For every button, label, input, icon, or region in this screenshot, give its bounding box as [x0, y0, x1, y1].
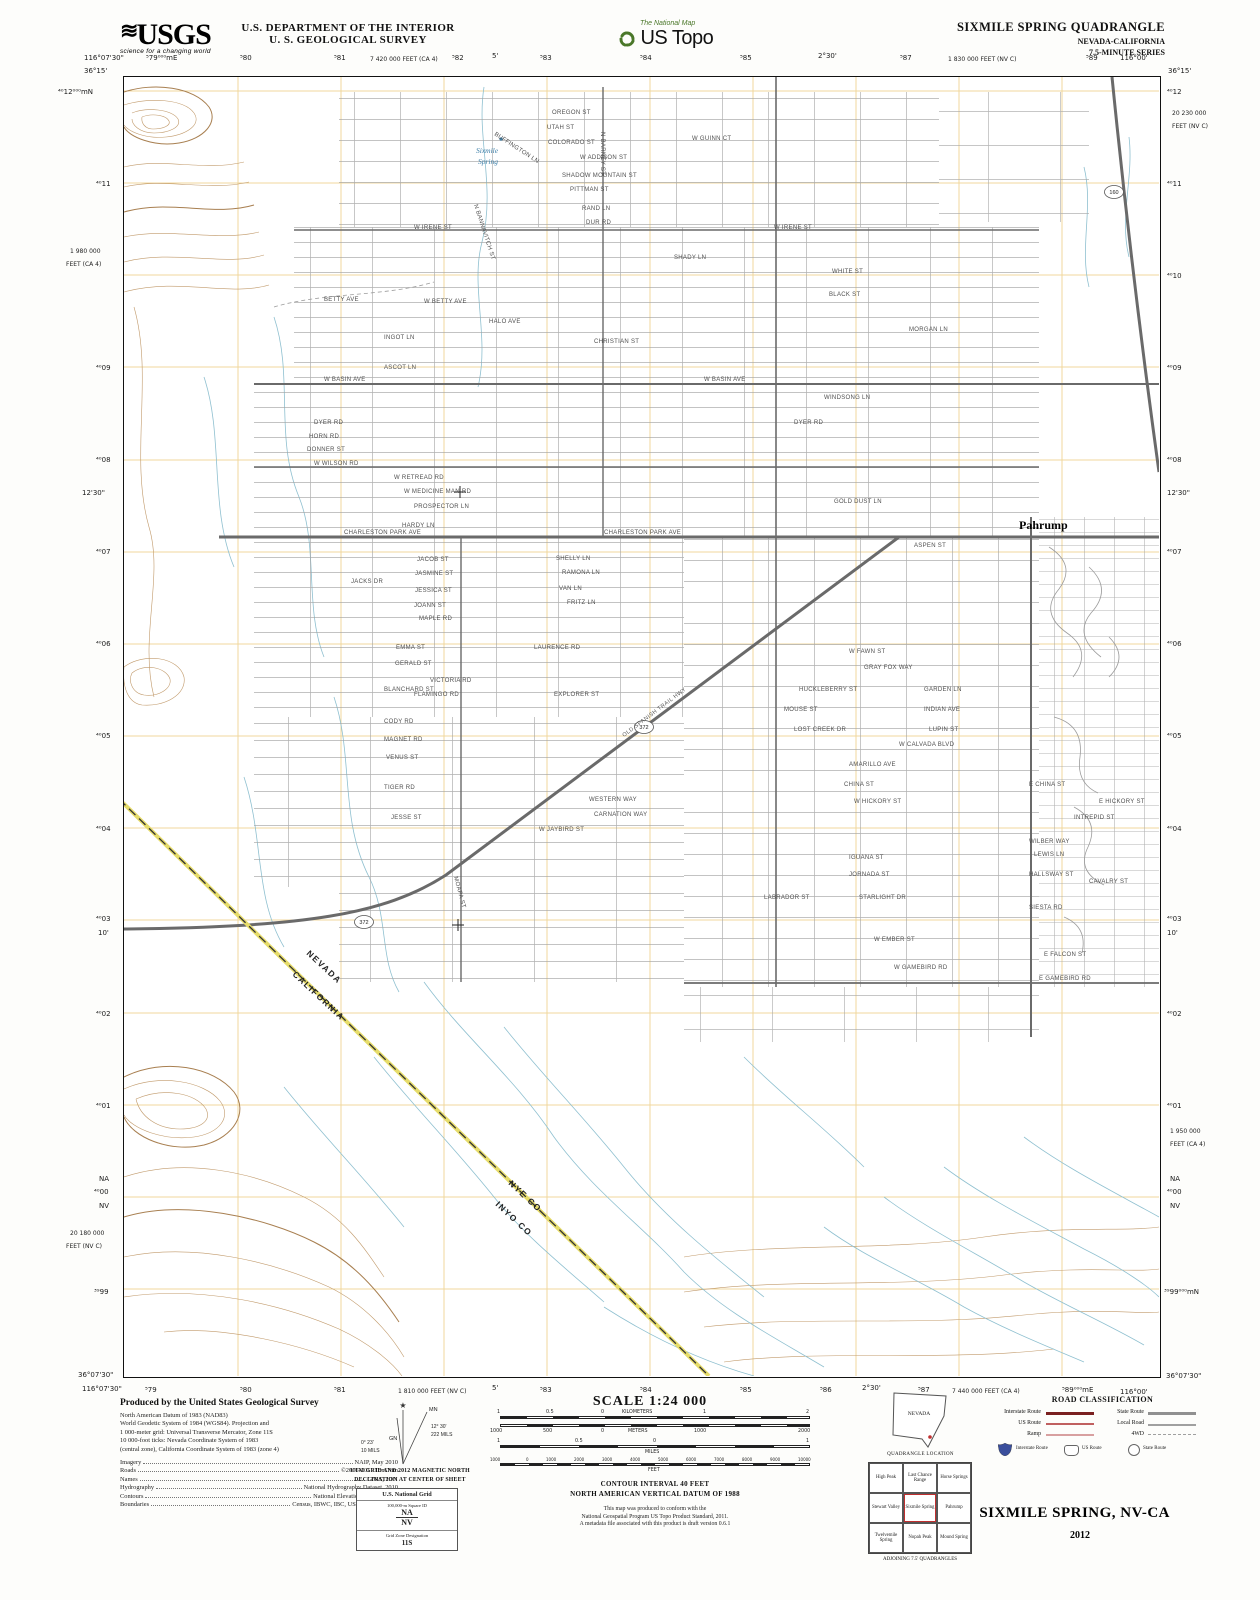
margin-label: ⁵80: [240, 54, 252, 62]
street-label: SHADY LN: [674, 255, 706, 261]
contour-interval: CONTOUR INTERVAL 40 FEET: [535, 1480, 775, 1488]
street-label: JESSICA ST: [415, 588, 452, 594]
street-label: W WILSON RD: [314, 461, 359, 467]
usng-gzd-label: Grid Zone Designation: [357, 1530, 457, 1538]
usgs-wave-icon: ≋: [120, 18, 136, 43]
conformance-line: A metadata file associated with this pro…: [495, 1521, 815, 1529]
margin-label: NV: [99, 1202, 109, 1210]
margin-label: ⁵85: [740, 1386, 752, 1394]
scale-tick: 1000: [546, 1457, 556, 1462]
gn-mils: 10 MILS: [361, 1448, 380, 1454]
street-label: INDIAN AVE: [924, 707, 960, 713]
usng-square-1: NA: [357, 1508, 457, 1517]
road-class-label: Interstate Route: [975, 1409, 1041, 1415]
usng-square-2: NV: [357, 1518, 457, 1527]
margin-label: 1 830 000 FEET (NV C): [948, 56, 1016, 63]
credit-label: Contours: [120, 1493, 143, 1500]
spring-label: Spring: [478, 157, 498, 166]
street-label: ASCOT LN: [384, 365, 416, 371]
adjoining-quad: Stewart Valley: [869, 1493, 903, 1523]
margin-label: ⁴⁰09: [96, 364, 111, 372]
department-heading: U.S. DEPARTMENT OF THE INTERIOR U. S. GE…: [218, 22, 478, 46]
street-label: CHARLESTON PARK AVE: [604, 530, 681, 536]
street-label: INTREPID ST: [1074, 815, 1115, 821]
street-label: OREGON ST: [552, 110, 591, 116]
scale-bar-km: [500, 1416, 810, 1419]
margin-label: ⁴⁰07: [96, 548, 111, 556]
margin-label: ⁴⁰05: [1167, 732, 1182, 740]
street-label: GERALD ST: [395, 661, 432, 667]
margin-label: ⁵84: [640, 54, 652, 62]
street-label: W GAMEBIRD RD: [894, 965, 948, 971]
margin-label: ⁴⁰06: [96, 640, 111, 648]
adjoining-quad: Last Chance Range: [903, 1463, 937, 1493]
route-shield-label: 372: [359, 920, 368, 926]
road-class-line-ramp: [1046, 1434, 1094, 1436]
margin-label: ⁵79: [145, 1386, 157, 1394]
conformance-line: This map was produced to conform with th…: [495, 1506, 815, 1514]
margin-label: ⁵83: [540, 54, 552, 62]
county-label-nye: NYE CO: [507, 1178, 544, 1214]
usng-title: U.S. National Grid: [357, 1489, 457, 1501]
street-label: MOUSE ST: [784, 707, 818, 713]
margin-label: 10': [1167, 929, 1178, 937]
dept-line2: U. S. GEOLOGICAL SURVEY: [218, 34, 478, 46]
scale-tick: 1000: [490, 1457, 500, 1462]
margin-label: NA: [99, 1175, 109, 1183]
margin-label: ⁴⁰04: [96, 825, 111, 833]
margin-label: 20 230 000: [1172, 110, 1206, 117]
road-class-line-interstate: [1046, 1412, 1094, 1415]
street-label: HALLSWAY ST: [1029, 872, 1074, 878]
scale-tick: 1: [497, 1410, 500, 1415]
street-label: W BASIN AVE: [324, 377, 366, 383]
street-label: VICTORIA RD: [430, 678, 472, 684]
street-label: BETTY AVE: [324, 297, 359, 303]
street-label: CHINA ST: [844, 782, 874, 788]
margin-label: 1 950 000: [1170, 1128, 1201, 1135]
street-label: PROSPECTOR LN: [414, 504, 469, 510]
ustopo-label: US Topo: [640, 27, 713, 49]
street-label: MORGAN LN: [909, 327, 948, 333]
margin-label: ⁴⁰12: [1167, 88, 1182, 96]
quad-title: SIXMILE SPRING QUADRANGLE: [845, 20, 1165, 35]
margin-label: 2°30': [818, 52, 837, 60]
margin-label: ⁴⁰09: [1167, 364, 1182, 372]
scale-tick: 9000: [770, 1457, 780, 1462]
gn-degrees: 0° 23': [361, 1440, 374, 1446]
street-label: E GAMEBIRD RD: [1039, 976, 1091, 982]
margin-label: ⁵81: [334, 1386, 346, 1394]
street-label: LABRADOR ST: [764, 895, 810, 901]
scale-tick: 5000: [658, 1457, 668, 1462]
map-canvas: 160 372 372 Pahrump Sixmile Spring NEVAD…: [124, 77, 1159, 1376]
scale-bar-miles: [500, 1445, 810, 1448]
margin-label: 36°15': [84, 67, 107, 75]
scale-tick: 4000: [630, 1457, 640, 1462]
margin-label: ⁴⁰01: [96, 1102, 111, 1110]
margin-label: 10': [98, 929, 109, 937]
ustopo-swirl-icon: [618, 30, 636, 48]
scale-tick: 7000: [714, 1457, 724, 1462]
credit-label: Imagery: [120, 1459, 141, 1466]
street-label: W FAWN ST: [849, 649, 886, 655]
road-class-label: State Route: [1096, 1409, 1144, 1415]
street-label: CAVALRY ST: [1089, 879, 1128, 885]
state-locator-map: NEVADA: [888, 1390, 952, 1450]
usng-box: U.S. National Grid 100,000-m Square ID N…: [356, 1488, 458, 1551]
declination-diagram: ★ MN GN 12° 30' 222 MILS 0° 23' 10 MILS: [345, 1398, 475, 1466]
street-label: EMMA ST: [396, 645, 425, 651]
scale-tick: 6000: [686, 1457, 696, 1462]
street-label: AMARILLO AVE: [849, 762, 896, 768]
street-label: HUCKLEBERRY ST: [799, 687, 857, 693]
street-label: W EMBER ST: [874, 937, 915, 943]
margin-label: ⁵85: [740, 54, 752, 62]
declination-caption: UTM GRID AND 2012 MAGNETIC NORTH: [325, 1468, 495, 1474]
margin-label: ⁴⁰07: [1167, 548, 1182, 556]
margin-label: 5': [492, 52, 498, 60]
road-class-line-local: [1148, 1424, 1196, 1426]
usgs-tagline: science for a changing world: [120, 48, 260, 55]
margin-label: 36°07'30": [1166, 1372, 1201, 1380]
adjoining-quad: Nopah Peak: [903, 1523, 937, 1553]
street-label: W CALVADA BLVD: [899, 742, 955, 748]
street-label: BLACK ST: [829, 292, 860, 298]
scale-tick: 1: [497, 1439, 500, 1444]
sheet-year: 2012: [1030, 1530, 1130, 1541]
street-label: E CHINA ST: [1029, 782, 1065, 788]
conformance-note: This map was produced to conform with th…: [495, 1506, 815, 1529]
street-label: HORN RD: [309, 434, 339, 440]
street-label: WESTERN WAY: [589, 797, 637, 803]
street-label: JACOB ST: [417, 557, 449, 563]
margin-label: ⁵81: [334, 54, 346, 62]
street-label: JOANN ST: [414, 603, 446, 609]
street-label: SHELLY LN: [556, 556, 591, 562]
margin-label: ⁴⁰02: [96, 1010, 111, 1018]
street-label: DONNER ST: [307, 447, 345, 453]
margin-label: ³⁹99⁰⁰⁰mN: [1164, 1288, 1199, 1296]
street-label: W GUINN CT: [692, 136, 731, 142]
scale-tick: 2: [806, 1410, 809, 1415]
usgs-logo-text: USGS: [136, 18, 210, 51]
map-sheet: ≋USGS science for a changing world U.S. …: [0, 0, 1260, 1600]
scale-bar-feet: [500, 1463, 810, 1466]
margin-label: ⁴⁰06: [1167, 640, 1182, 648]
street-label: W MEDICINE MAN RD: [404, 489, 471, 495]
margin-label: NA: [1170, 1175, 1180, 1183]
street-label: IGUANA ST: [849, 855, 884, 861]
map-area: 160 372 372 Pahrump Sixmile Spring NEVAD…: [123, 76, 1161, 1378]
margin-label: ⁵80: [240, 1386, 252, 1394]
street-label: WHITE ST: [832, 269, 863, 275]
road-class-label: 4WD: [1096, 1431, 1144, 1437]
margin-label: ⁴⁰12⁰⁰⁰mN: [58, 88, 93, 96]
scale-title: SCALE 1:24 000: [520, 1394, 780, 1410]
street-label: E HICKORY ST: [1099, 799, 1145, 805]
margin-label: 116°07'30": [84, 54, 124, 62]
magnetic-north-label: MN: [429, 1407, 438, 1413]
margin-label: ⁴⁰01: [1167, 1102, 1182, 1110]
street-label: W BASIN AVE: [704, 377, 746, 383]
scale-tick: 1000: [694, 1429, 706, 1434]
street-label: MAPLE RD: [419, 616, 452, 622]
quad-location-caption: QUADRANGLE LOCATION: [858, 1452, 983, 1457]
street-label: FRITZ LN: [567, 600, 596, 606]
scale-tick: 0: [653, 1439, 656, 1444]
street-label: VAN LN: [559, 586, 582, 592]
street-label: MAGNET RD: [384, 737, 423, 743]
road-class-line-state: [1148, 1412, 1196, 1415]
margin-label: ⁵89⁰⁰⁰mE: [1062, 1386, 1093, 1394]
street-label: CHARLESTON PARK AVE: [344, 530, 421, 536]
road-class-label: Local Road: [1096, 1420, 1144, 1426]
street-label: STARLIGHT DR: [859, 895, 906, 901]
shield-label: Interstate Route: [1016, 1446, 1048, 1451]
scale-tick: 0.5: [575, 1439, 583, 1444]
road-class-line-us: [1046, 1423, 1094, 1425]
usng-square-label: 100,000-m Square ID: [357, 1501, 457, 1508]
street-label: JACKS DR: [351, 579, 383, 585]
scale-tick: 10000: [798, 1457, 811, 1462]
street-label: LEWIS LN: [1034, 852, 1064, 858]
margin-label: ⁴⁰10: [1167, 272, 1182, 280]
scale-tick: 1000: [490, 1429, 502, 1434]
margin-label: ⁵89: [1086, 54, 1098, 62]
scale-unit: METERS: [628, 1429, 648, 1434]
margin-label: ⁴⁰00: [1167, 1188, 1182, 1196]
street-label: CODY RD: [384, 719, 414, 725]
mn-degrees: 12° 30': [431, 1424, 447, 1430]
street-label: DUR RD: [586, 220, 611, 226]
interstate-shield-icon: [998, 1443, 1012, 1456]
sheet-title: SIXMILE SPRING, NV-CA: [930, 1505, 1170, 1522]
route-shield-160: 160: [1105, 186, 1124, 199]
street-label: GOLD DUST LN: [834, 499, 882, 505]
state-route-circle-icon: [1128, 1444, 1140, 1456]
margin-label: 36°15': [1168, 67, 1191, 75]
scale-tick: 0: [526, 1457, 529, 1462]
shield-label: State Route: [1143, 1446, 1166, 1451]
shield-label: US Route: [1082, 1446, 1102, 1451]
margin-label: ⁴⁰08: [1167, 456, 1182, 464]
street-label: W IRENE ST: [774, 225, 812, 231]
adjoining-quad: Horse Springs: [937, 1463, 971, 1493]
margin-label: 1 980 000: [70, 248, 101, 255]
margin-label: ⁴⁰08: [96, 456, 111, 464]
street-label: ASPEN ST: [914, 543, 946, 549]
dotted-leader: [151, 1505, 290, 1506]
adjoining-caption: ADJOINING 7.5' QUADRANGLES: [845, 1557, 995, 1562]
dotted-leader: [138, 1471, 339, 1472]
margin-label: ⁵83: [540, 1386, 552, 1394]
road-class-label: Ramp: [975, 1431, 1041, 1437]
quad-location-dot: [928, 1435, 932, 1439]
credit-label: Roads: [120, 1467, 136, 1474]
street-label: PITTMAN ST: [570, 187, 609, 193]
national-map-label: The National Map: [640, 20, 738, 27]
street-label: JORNADA ST: [849, 872, 890, 878]
street-grid: [254, 92, 1159, 1042]
street-label: BLANCHARD ST: [384, 687, 434, 693]
scale-bar-m: [500, 1424, 810, 1427]
street-label: COLORADO ST: [548, 140, 595, 146]
street-label: RAND LN: [582, 206, 610, 212]
scale-tick: 8000: [742, 1457, 752, 1462]
margin-label: ⁵86: [820, 1386, 832, 1394]
street-label: W IRENE ST: [414, 225, 452, 231]
street-label: JASMINE ST: [415, 571, 453, 577]
scale-tick: 1: [703, 1410, 706, 1415]
street-label: TIGER RD: [384, 785, 415, 791]
street-label: EXPLORER ST: [554, 692, 599, 698]
margin-label: 5': [492, 1384, 498, 1392]
adjoining-quad: Mound Spring: [937, 1523, 971, 1553]
street-label: VENUS ST: [386, 755, 418, 761]
margin-label: 7 420 000 FEET (CA 4): [370, 56, 438, 63]
scale-unit: MILES: [645, 1450, 659, 1455]
route-shield-372-west: 372: [355, 916, 374, 929]
spring-label: Sixmile: [476, 146, 499, 155]
margin-label: ³⁹99: [94, 1288, 109, 1296]
street-label: LAURENCE RD: [534, 645, 581, 651]
margin-label: 1 810 000 FEET (NV C): [398, 1388, 466, 1395]
street-label: HARDY LN: [402, 523, 435, 529]
street-label: W RETREAD RD: [394, 475, 444, 481]
street-label: GARDEN LN: [924, 687, 962, 693]
street-label: UTAH ST: [547, 125, 574, 131]
true-north-star-icon: ★: [399, 1401, 406, 1410]
margin-label: ⁵87: [900, 54, 912, 62]
street-label: WILBER WAY: [1029, 839, 1070, 845]
grid-north-label: GN: [389, 1436, 397, 1442]
margin-label: ⁴⁰11: [1167, 180, 1182, 188]
street-label: JESSE ST: [391, 815, 422, 821]
dotted-leader: [156, 1488, 302, 1489]
road-class-label: US Route: [975, 1420, 1041, 1426]
dept-line1: U.S. DEPARTMENT OF THE INTERIOR: [218, 22, 478, 34]
road-class-line-4wd: [1148, 1434, 1196, 1435]
street-label: WINDSONG LN: [824, 395, 870, 401]
margin-label: ⁴⁰03: [96, 915, 111, 923]
street-label: E FALCON ST: [1044, 952, 1086, 958]
scale-unit: FEET: [648, 1468, 660, 1473]
ustopo-logo: The National Map US Topo: [618, 20, 738, 50]
scale-tick: 0: [601, 1429, 604, 1434]
margin-label: ⁴⁰03: [1167, 915, 1182, 923]
margin-label: FEET (CA 4): [1170, 1141, 1205, 1148]
margin-label: 2°30': [862, 1384, 881, 1392]
margin-label: FEET (CA 4): [66, 261, 101, 268]
road-classification-title: ROAD CLASSIFICATION: [1010, 1395, 1195, 1404]
us-route-shield-icon: [1064, 1445, 1079, 1456]
credit-label: Names: [120, 1476, 138, 1483]
scale-unit: KILOMETERS: [622, 1410, 652, 1415]
scale-tick: 1: [806, 1439, 809, 1444]
scale-tick: 3000: [602, 1457, 612, 1462]
street-label: CHRISTIAN ST: [594, 339, 639, 345]
credit-label: Boundaries: [120, 1501, 149, 1508]
mn-mils: 222 MILS: [431, 1432, 453, 1438]
margin-label: NV: [1170, 1202, 1180, 1210]
margin-label: ⁵82: [452, 54, 464, 62]
street-label: DYER RD: [314, 420, 343, 426]
street-label: LUPIN ST: [929, 727, 958, 733]
credit-label: Hydrography: [120, 1484, 154, 1491]
street-label: RAMONA LN: [562, 570, 600, 576]
adjoining-quad: High Peak: [869, 1463, 903, 1493]
state-locator-label: NEVADA: [908, 1411, 931, 1417]
margin-label: ⁵84: [640, 1386, 652, 1394]
street-label: W HICKORY ST: [854, 799, 901, 805]
scale-tick: 0: [601, 1410, 604, 1415]
street-label: CARNATION WAY: [594, 812, 647, 818]
margin-label: 7 440 000 FEET (CA 4): [952, 1388, 1020, 1395]
margin-label: 116°00': [1120, 54, 1148, 62]
margin-label: 36°07'30": [78, 1371, 113, 1379]
adjoining-quad: Twelvemile Spring: [869, 1523, 903, 1553]
usng-gzd-value: 11S: [357, 1538, 457, 1550]
margin-label: FEET (NV C): [1172, 123, 1208, 130]
margin-label: FEET (NV C): [66, 1243, 102, 1250]
scale-tick: 2000: [798, 1429, 810, 1434]
margin-label: 12'30": [82, 489, 105, 497]
street-label: SIESTA RD: [1029, 905, 1063, 911]
scale-tick: 0.5: [546, 1410, 554, 1415]
margin-label: ⁴⁰05: [96, 732, 111, 740]
margin-label: ⁴⁰02: [1167, 1010, 1182, 1018]
route-shield-label: 160: [1109, 190, 1118, 196]
scale-tick: 500: [543, 1429, 552, 1434]
street-label: HALO AVE: [489, 319, 521, 325]
street-label: INGOT LN: [384, 335, 415, 341]
produced-by: Produced by the United States Geological…: [120, 1398, 319, 1408]
scale-tick: 2000: [574, 1457, 584, 1462]
dotted-leader: [143, 1463, 352, 1464]
margin-label: ⁴⁰00: [94, 1188, 109, 1196]
declination-caption: DECLINATION AT CENTER OF SHEET: [325, 1477, 495, 1483]
margin-label: ⁴⁰04: [1167, 825, 1182, 833]
dotted-leader: [145, 1497, 311, 1498]
street-label: N BARNEY ST: [599, 132, 605, 175]
street-label: W JAYBIRD ST: [539, 827, 584, 833]
street-label: GRAY FOX WAY: [864, 665, 913, 671]
margin-label: ⁵79⁰⁰⁰mE: [146, 54, 177, 62]
vertical-datum: NORTH AMERICAN VERTICAL DATUM OF 1988: [535, 1490, 775, 1498]
quadrangle-heading: SIXMILE SPRING QUADRANGLE NEVADA-CALIFOR…: [845, 20, 1165, 57]
margin-label: 20 180 000: [70, 1230, 104, 1237]
margin-label: 12'30": [1167, 489, 1190, 497]
street-label: DYER RD: [794, 420, 823, 426]
margin-label: ⁴⁰11: [96, 180, 111, 188]
quad-state: NEVADA-CALIFORNIA: [845, 37, 1165, 46]
margin-label: 116°07'30": [82, 1385, 122, 1393]
street-label: LOST CREEK DR: [794, 727, 847, 733]
street-label: W BETTY AVE: [424, 299, 467, 305]
town-label: Pahrump: [1019, 518, 1068, 532]
